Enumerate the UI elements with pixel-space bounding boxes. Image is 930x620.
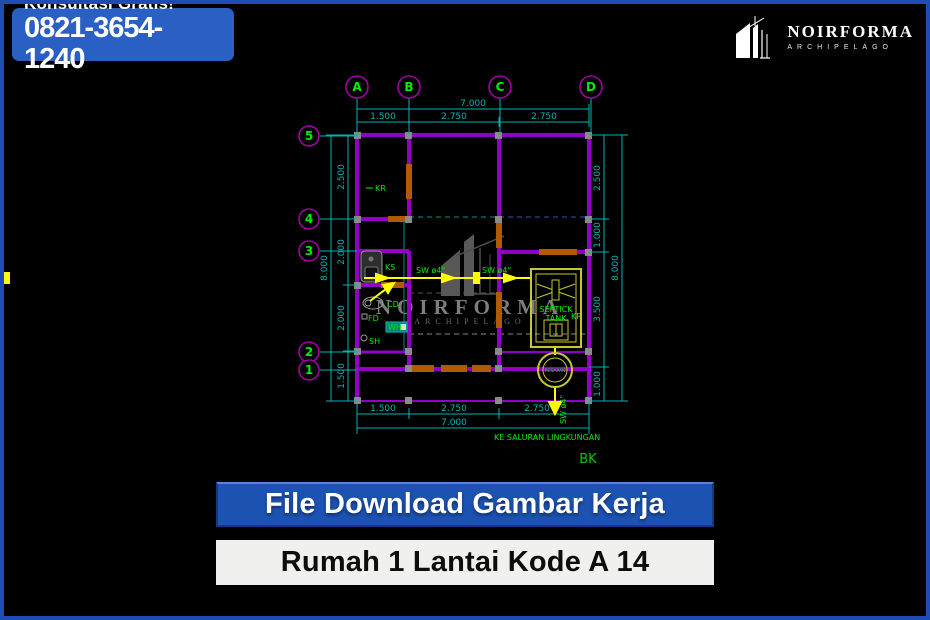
grid-col-c: C [496, 80, 505, 94]
dim-right-seg1: 2.500 [593, 165, 603, 191]
label-pipe-sw2: SW ø4" [482, 266, 511, 275]
dim-left-seg1: 2.500 [337, 164, 347, 190]
watermark-logo-icon [441, 234, 504, 296]
label-septic-1: SEPTICK [539, 305, 573, 314]
dim-bottom-seg3: 2.750 [524, 404, 550, 414]
grid-row-5: 5 [305, 129, 313, 143]
building-icon [730, 14, 778, 60]
promo-image: NOIRFORMA ARCHIPELAGO [0, 0, 930, 620]
grid-col-d: D [586, 80, 596, 94]
label-septic-2: TANK [545, 314, 568, 323]
dim-right-seg4: 1.000 [593, 371, 603, 397]
label-ks: KS [385, 263, 395, 272]
label-kr-left: KR [375, 184, 386, 193]
dim-left-seg3: 2.000 [337, 305, 347, 331]
grid-row-3: 3 [305, 244, 313, 258]
title-banner-label: Rumah 1 Lantai Kode A 14 [281, 546, 649, 579]
grid-col-a: A [352, 80, 362, 94]
dim-left-total: 8.000 [320, 255, 330, 281]
brand-tagline: ARCHIPELAGO [787, 44, 914, 51]
download-banner[interactable]: File Download Gambar Kerja [216, 482, 714, 527]
label-bk: BK [579, 452, 597, 467]
label-sh: SH [369, 337, 380, 346]
brand-name: NOIRFORMA [787, 23, 914, 42]
label-pipe-sw1: SW ø4" [416, 266, 445, 275]
dim-right-seg3: 3.500 [593, 296, 603, 322]
grid-row-2: 2 [305, 345, 313, 359]
label-outfall: KE SALURAN LINGKUNGAN [494, 433, 600, 442]
grid-row-1: 1 [305, 363, 313, 377]
grid-col-b: B [404, 80, 413, 94]
dim-right-total: 8.000 [611, 255, 621, 281]
dim-left-seg2: 2.000 [337, 239, 347, 265]
dim-top-seg3: 2.750 [531, 112, 557, 122]
dim-bottom-seg1: 1.500 [370, 404, 396, 414]
dim-top-total: 7.000 [460, 99, 486, 109]
dim-bottom-seg2: 2.750 [441, 404, 467, 414]
download-banner-label: File Download Gambar Kerja [265, 488, 665, 521]
dim-top-seg2: 2.750 [441, 112, 467, 122]
contact-badge-tagline: Konsultasi Gratis! [24, 0, 222, 13]
grid-row-4: 4 [305, 212, 313, 226]
label-wh: WH [388, 323, 402, 332]
dim-top-seg1: 1.500 [370, 112, 396, 122]
label-fd: FD [368, 314, 379, 323]
dim-right-seg2: 1.000 [593, 222, 603, 248]
floor-plan-drawing: NOIRFORMA ARCHIPELAGO [4, 4, 930, 620]
brand-logo: NOIRFORMA ARCHIPELAGO [730, 14, 914, 60]
label-resapan: RESAPAN [545, 368, 566, 374]
contact-badge: Konsultasi Gratis! 0821-3654-1240 [12, 8, 234, 61]
dim-bottom-total: 7.000 [441, 418, 467, 428]
dim-left-seg4: 1.500 [337, 363, 347, 389]
watermark-tagline: ARCHIPELAGO [414, 317, 525, 326]
contact-phone-number: 0821-3654-1240 [24, 13, 222, 74]
label-pipe-sw3: SW ø4" [559, 395, 568, 424]
title-banner: Rumah 1 Lantai Kode A 14 [216, 540, 714, 585]
label-cd: CD [387, 300, 399, 309]
